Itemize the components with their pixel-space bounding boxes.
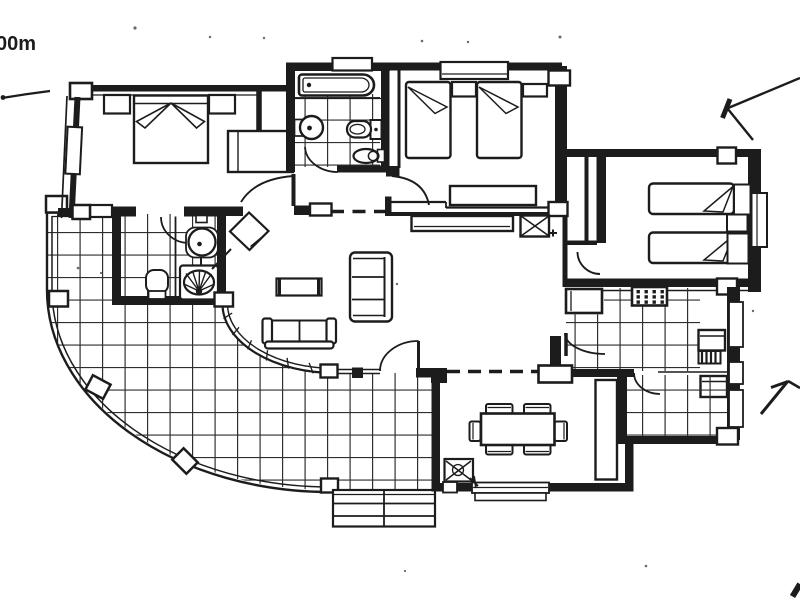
svg-text:00m: 00m xyxy=(0,33,36,55)
